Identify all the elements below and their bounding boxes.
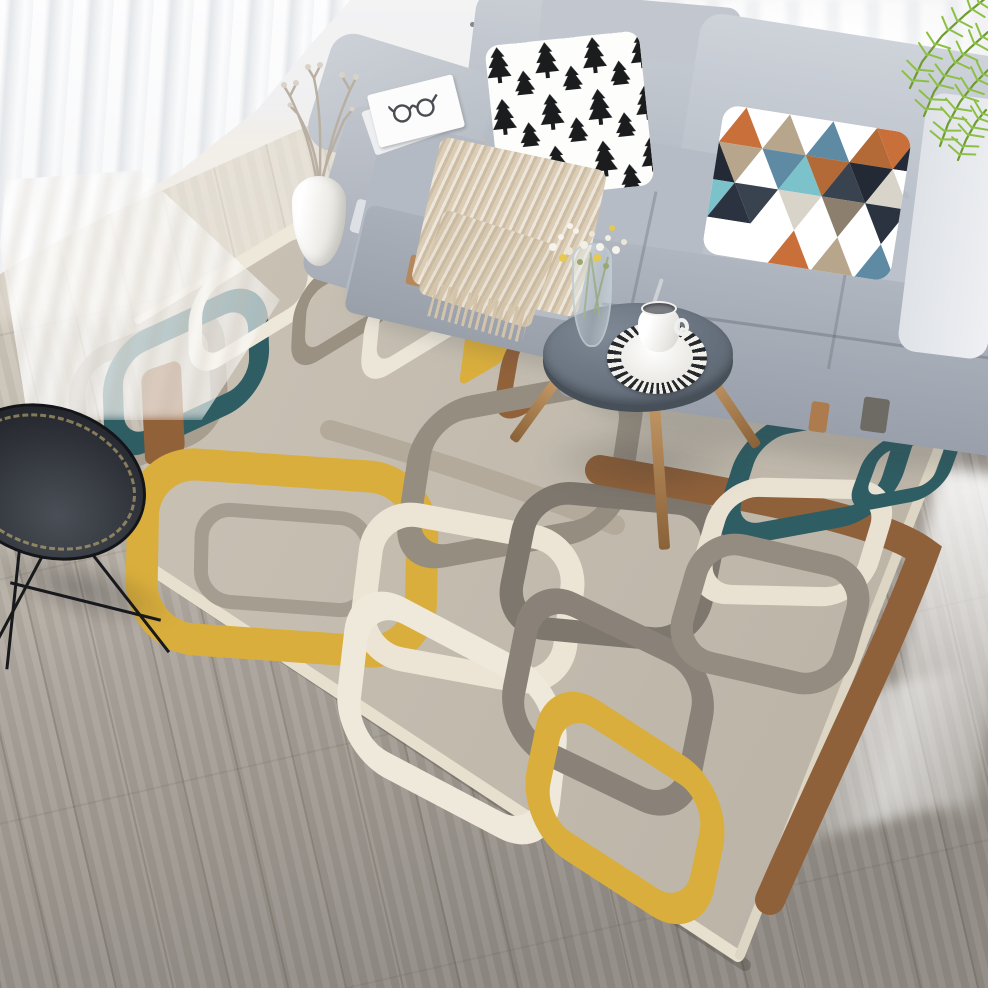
palm-leaflet [952,8,958,22]
coffee-cup-opening [641,301,677,316]
palm-leaves [878,0,988,188]
palm-leaflet [971,67,977,80]
palm-leaflet [916,100,927,110]
palm-leaflet [939,85,953,89]
palm-leaflet [970,89,984,94]
flower [565,247,573,255]
palm-leaflet [936,44,950,49]
palm-leaflet [902,71,913,81]
flower [609,225,615,231]
palm-leaflet [919,43,927,55]
palm-leaflet [934,122,945,131]
palm-leaflet [961,78,969,91]
flower [593,254,601,262]
palm-leaflet [928,54,942,59]
palm-leaflet [969,30,975,44]
flower [577,259,583,265]
palm-leaflet [946,99,956,110]
palm-leaflet [929,74,938,86]
flower [612,246,620,254]
coffee-cup-handle [674,318,689,336]
palm-leaflet [920,90,931,100]
flower [621,239,627,245]
palm-leaflet [983,114,988,119]
palm-leaflet [949,145,960,155]
palm-leaflet [942,17,948,31]
palm-leaflet [945,75,959,79]
palm-leaflet [984,74,988,80]
palm-leaflet [966,0,971,10]
palm-leaflet [964,97,978,102]
palm-leaflet [927,109,942,110]
flower [589,231,595,237]
palm-leaflet [975,101,983,114]
sofa [0,0,988,988]
palm-leaflet [979,118,988,123]
palm-leaflet [976,24,982,38]
sofa-leg [860,396,890,433]
flower [567,223,573,229]
palm-leaflet [975,43,988,50]
palm-leaflet [972,9,985,17]
flower [596,243,604,251]
palm-leaflet [957,42,963,55]
palm-leaflet [936,64,945,76]
palm-leaflet [977,61,983,74]
palm-leaflet [914,80,929,81]
flower [549,243,557,251]
palm-leaflet [931,99,946,100]
palm-leaflet [964,146,979,147]
palm-leaflet [949,50,955,63]
palm-leaflet [931,131,942,140]
palm-leaflet [949,29,962,36]
flower [605,235,611,241]
palm-leaflet [907,61,918,71]
palm-leaflet [963,117,973,128]
palm-leaflet [956,85,964,98]
palm-leaflet [978,80,988,86]
flower [603,263,609,269]
palm-leaflet [927,33,935,45]
palm-leaflet [980,3,988,11]
palm-leaflet [974,0,979,4]
palm-leaflet [956,62,969,68]
palm-leaflet [960,154,975,155]
flower [573,228,579,234]
palm-leaflet [956,109,971,111]
palm-leaflet [971,106,979,119]
flower [580,241,588,249]
living-room-photo [0,0,988,988]
eyeglasses-icon [387,88,445,130]
palm-leaflet [973,127,988,129]
palm-leaflet [918,70,933,71]
palm-leaflet [983,37,988,44]
palm-leaflet [959,21,972,28]
dried-branches [262,56,374,188]
flower [558,234,564,240]
flower [559,254,567,262]
palm-leaflet [964,54,977,60]
palm-leaflet [969,135,984,137]
palm-leaflet [941,107,951,118]
